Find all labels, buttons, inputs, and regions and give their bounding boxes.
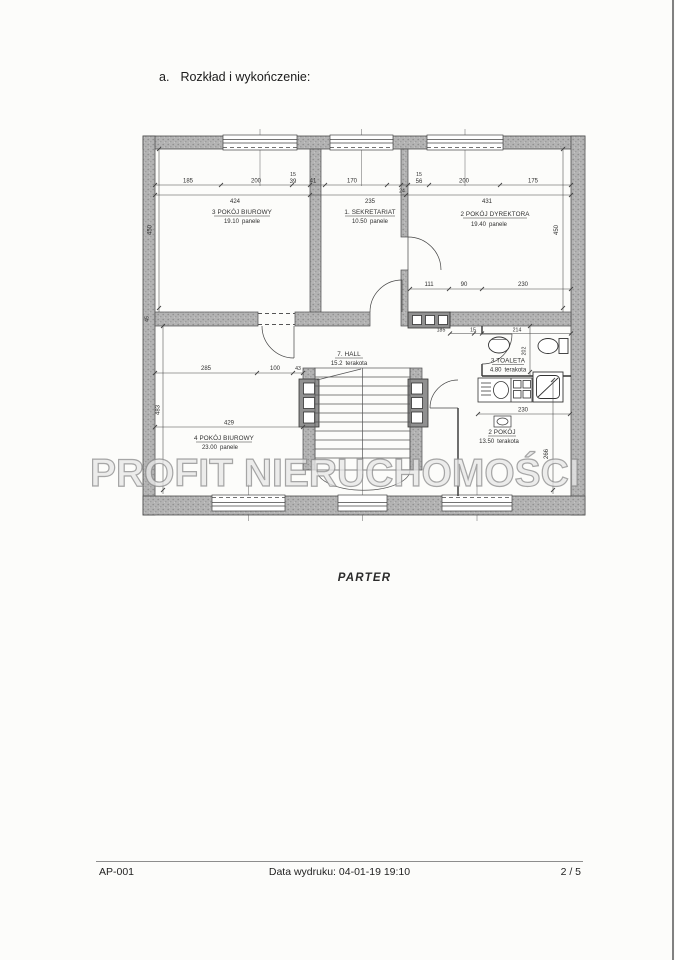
- door-arc-room2: [430, 380, 458, 408]
- svg-text:15.2terakota: 15.2terakota: [331, 361, 368, 367]
- svg-text:3 TOALETA: 3 TOALETA: [491, 358, 526, 365]
- chimney-flues: [299, 312, 450, 427]
- svg-text:4.80terakota: 4.80terakota: [490, 368, 527, 374]
- wall-opening-dashed: [258, 314, 295, 325]
- room-label-pokoj-dyrektora: 2 POKÓJ DYREKTORA 19.40panele: [460, 209, 530, 228]
- dim-label: 185: [437, 328, 446, 334]
- dim-label: 230: [518, 282, 529, 288]
- svg-text:10.50panele: 10.50panele: [352, 219, 389, 225]
- dim-label: 424: [230, 199, 241, 205]
- door-arc-sekretariat: [370, 280, 402, 312]
- dim-label: 214: [513, 328, 522, 334]
- dim-label: 200: [459, 179, 470, 185]
- scan-edge-artifact: [672, 0, 674, 960]
- section-heading: a. Rozkład i wykończenie:: [159, 70, 310, 84]
- window-bottom-1: [212, 495, 285, 511]
- svg-text:3 POKÓJ BIUROWY: 3 POKÓJ BIUROWY: [212, 207, 273, 216]
- door-arc-room4: [262, 326, 294, 358]
- footer-divider: [96, 861, 583, 862]
- dim-label: 15: [470, 328, 476, 334]
- svg-text:13.50terakota: 13.50terakota: [479, 439, 519, 445]
- page-title: Rozkład i wykończenie:: [180, 70, 310, 84]
- dim-label: 90: [461, 282, 468, 288]
- washbasin-fixture: [489, 337, 510, 353]
- dim-label: 15: [290, 172, 296, 178]
- dim-label: 100: [270, 366, 281, 372]
- shower-fixture: [533, 372, 563, 402]
- watermark: PROFIT NIERUCHOMOŚCI: [90, 452, 590, 496]
- entrance-opening: [338, 495, 387, 511]
- dim-label: 43: [295, 366, 301, 372]
- dim-label: 285: [201, 366, 212, 372]
- room-label-pokoj-biurowy-3: 3 POKÓJ BIUROWY 19.10panele: [212, 207, 273, 225]
- svg-text:2 POKÓJ: 2 POKÓJ: [488, 427, 515, 436]
- room-label-pokoj-2: 2 POKÓJ 13.50terakota: [479, 427, 519, 445]
- window-top-3: [427, 135, 503, 150]
- sink-fixture: [494, 416, 511, 427]
- window-bottom-2: [442, 495, 512, 511]
- footer-print-date: Data wydruku: 04-01-19 19:10: [96, 866, 583, 878]
- svg-text:4 POKÓJ BIUROWY: 4 POKÓJ BIUROWY: [194, 433, 255, 442]
- svg-text:19.40panele: 19.40panele: [471, 222, 508, 228]
- dim-label: 175: [528, 179, 539, 185]
- dim-label: 235: [365, 199, 376, 205]
- dim-label: 431: [482, 199, 493, 205]
- dim-label: 202: [522, 347, 528, 356]
- room-label-hall: 7. HALL 15.2terakota: [331, 351, 368, 367]
- dim-label: 230: [518, 408, 529, 414]
- heading-letter: a.: [159, 70, 169, 84]
- dim-label: 450: [148, 224, 154, 235]
- plan-caption: PARTER: [142, 572, 587, 584]
- room-label-sekretariat: 1. SEKRETARIAT 10.50panele: [344, 209, 395, 225]
- svg-text:23.00panele: 23.00panele: [202, 445, 239, 451]
- toilet-fixture: [538, 339, 568, 354]
- dim-label: 45: [145, 316, 151, 322]
- svg-text:19.10panele: 19.10panele: [224, 219, 261, 225]
- dim-label: 15: [416, 172, 422, 178]
- dim-label: 200: [251, 179, 262, 185]
- room-label-pokoj-biurowy-4: 4 POKÓJ BIUROWY 23.00panele: [194, 433, 255, 451]
- window-top-1: [223, 135, 297, 150]
- dim-label: 185: [183, 179, 194, 185]
- dim-label: 450: [554, 224, 560, 235]
- window-top-2: [330, 135, 393, 150]
- kitchenette-fixture: [478, 378, 532, 402]
- dim-label: 429: [224, 421, 235, 427]
- footer-page-number: 2 / 5: [561, 866, 581, 878]
- dim-label: 483: [156, 404, 162, 415]
- dim-label: 41: [310, 179, 317, 185]
- door-arc-dyrektora: [408, 237, 441, 270]
- dim-label: 111: [424, 282, 434, 288]
- dim-label: 56: [416, 179, 423, 185]
- svg-text:2 POKÓJ DYREKTORA: 2 POKÓJ DYREKTORA: [460, 209, 530, 218]
- room-labels: 3 POKÓJ BIUROWY 19.10panele 1. SEKRETARI…: [194, 207, 530, 451]
- svg-text:7. HALL: 7. HALL: [337, 351, 361, 358]
- svg-text:1. SEKRETARIAT: 1. SEKRETARIAT: [344, 209, 395, 216]
- dim-label: 39: [290, 179, 297, 185]
- dim-label: 170: [347, 179, 358, 185]
- dim-label: 24: [399, 189, 405, 195]
- room-label-toaleta: 3 TOALETA 4.80terakota: [490, 358, 527, 374]
